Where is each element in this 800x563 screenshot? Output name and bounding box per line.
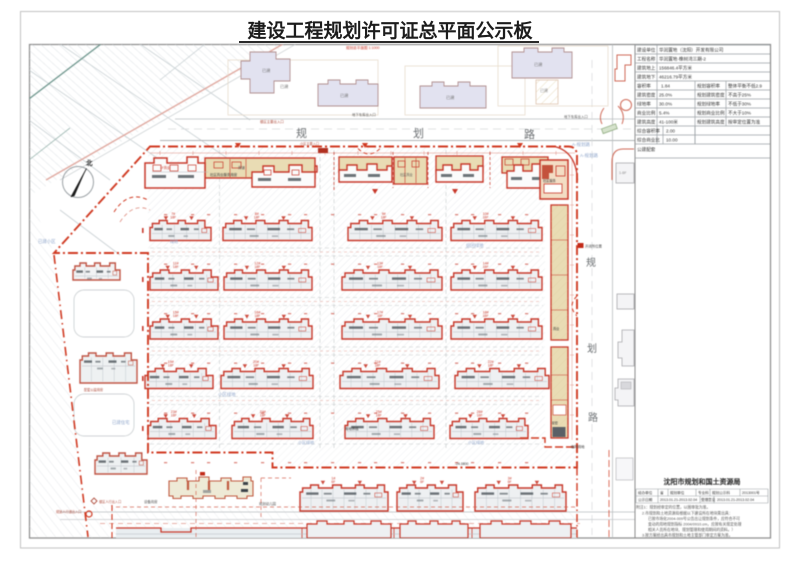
svg-text:路: 路 (524, 128, 535, 141)
svg-text:规划商业比例: 规划商业比例 (697, 109, 725, 116)
svg-text:已建: 已建 (280, 83, 289, 90)
svg-text:商业: 商业 (553, 326, 559, 331)
svg-text:已建: 已建 (540, 87, 548, 93)
svg-text:华润置地（沈阳）开发有限公司: 华润置地（沈阳）开发有限公司 (659, 46, 724, 53)
svg-text:18F: 18F (488, 364, 494, 368)
svg-text:公示日期: 公示日期 (638, 497, 653, 502)
svg-text:2.市规划和土地资源局根据以下建设所在地块需出具：: 2.市规划和土地资源局根据以下建设所在地块需出具： (642, 511, 733, 516)
svg-text:绿地率: 绿地率 (637, 100, 651, 107)
svg-text:18F: 18F (377, 265, 383, 269)
svg-text:已建: 已建 (446, 94, 455, 101)
svg-text:规划容积率: 规划容积率 (697, 82, 720, 89)
svg-text:相关人员所在地块、规划管理和使用期间的资料。）: 相关人员所在地块、规划管理和使用期间的资料。） (648, 527, 735, 532)
svg-text:配套: 配套 (552, 420, 558, 425)
svg-text:规划公示科: 规划公示科 (712, 490, 730, 495)
svg-text:10.00: 10.00 (666, 137, 678, 142)
svg-text:18F: 18F (375, 364, 381, 368)
svg-text:组团绿地: 组团绿地 (466, 242, 484, 249)
svg-text:公建配套: 公建配套 (637, 146, 656, 153)
svg-text:综合容积率: 综合容积率 (637, 127, 660, 134)
svg-text:路: 路 (588, 411, 598, 424)
svg-text:规划总平面图 1:1000: 规划总平面图 1:1000 (346, 45, 380, 50)
svg-text:已建: 已建 (340, 92, 349, 99)
svg-text:18F: 18F (253, 364, 259, 368)
svg-text:用地界线: 用地界线 (345, 426, 359, 431)
svg-text:2013001号: 2013001号 (742, 490, 760, 495)
svg-text:18F: 18F (376, 414, 382, 418)
svg-text:建筑高度: 建筑高度 (637, 118, 656, 125)
svg-text:地下车库出入口: 地下车库出入口 (352, 112, 376, 117)
svg-text:社区服务: 社区服务 (543, 178, 557, 183)
svg-text:规: 规 (296, 126, 307, 140)
svg-text:小区主要入口: 小区主要入口 (300, 141, 319, 146)
svg-text:41-100米: 41-100米 (659, 118, 678, 125)
svg-text:华润置地·橡树湾三期-2: 华润置地·橡树湾三期-2 (659, 55, 706, 62)
svg-text:25.0%: 25.0% (659, 92, 672, 97)
svg-text:划: 划 (587, 342, 597, 355)
svg-text:不高于25%: 不高于25% (728, 91, 751, 98)
svg-text:北: 北 (86, 158, 93, 167)
svg-text:A-规划路: A-规划路 (572, 141, 590, 148)
svg-text:3.按方案经出具市规划和土地主管部门审定方案为准。: 3.按方案经出具市规划和土地主管部门审定方案为准。 (642, 533, 733, 538)
svg-text:小区绿地: 小区绿地 (298, 439, 314, 445)
svg-text:建设单位: 建设单位 (637, 46, 656, 53)
svg-text:地下车库出入口: 地下车库出入口 (564, 114, 588, 119)
svg-text:开闭所位置: 开闭所位置 (585, 244, 603, 249)
svg-text:社区商业服务用房: 社区商业服务用房 (210, 172, 238, 177)
svg-text:18F: 18F (168, 364, 174, 368)
svg-text:配套公建用房: 配套公建用房 (84, 387, 103, 392)
svg-text:建筑地下: 建筑地下 (637, 73, 656, 80)
svg-text:30.0%: 30.0% (659, 101, 672, 106)
svg-text:小区绿地: 小区绿地 (468, 439, 484, 445)
svg-text:经办单位: 经办单位 (638, 490, 653, 495)
svg-text:已建小区: 已建小区 (38, 238, 56, 245)
svg-text:不大于10%: 不大于10% (728, 109, 751, 116)
svg-text:按审定位置为准: 按审定位置为准 (728, 118, 761, 125)
svg-text:1F商业: 1F商业 (160, 165, 170, 170)
svg-text:楼区主要出入口: 楼区主要出入口 (260, 119, 284, 124)
svg-text:6F: 6F (331, 480, 335, 484)
svg-text:专业科: 专业科 (698, 490, 709, 495)
svg-text:A-规划路: A-规划路 (580, 152, 598, 159)
svg-text:商业比例: 商业比例 (637, 109, 656, 116)
svg-text:绿地: 绿地 (170, 238, 178, 244)
svg-text:规划建筑高度: 规划建筑高度 (697, 118, 725, 125)
svg-text:变动的用地规划指标 2004/0910.cm，应按有关规定处: 变动的用地规划指标 2004/0910.cm，应按有关规定处理 (648, 522, 742, 527)
svg-text:附注1：规划经审定的位置，以图审批为准。: 附注1：规划经审定的位置，以图审批为准。 (636, 505, 710, 510)
svg-text:规划建筑密度: 规划建筑密度 (697, 91, 725, 98)
svg-text:已建住宅: 已建住宅 (112, 419, 130, 426)
svg-text:已建: 已建 (534, 61, 543, 68)
svg-text:容积率: 容积率 (637, 82, 651, 89)
svg-text:18F: 18F (173, 265, 179, 269)
svg-text:156846.4平方米: 156846.4平方米 (659, 64, 692, 71)
svg-text:18F: 18F (483, 314, 489, 318)
svg-text:18F: 18F (260, 414, 266, 418)
svg-text:2013.01.21-2013.02.04: 2013.01.21-2013.02.04 (717, 498, 754, 502)
svg-text:商铺: 商铺 (238, 165, 245, 170)
svg-text:规划幼儿园: 规划幼儿园 (259, 501, 277, 506)
svg-text:6F: 6F (508, 480, 512, 484)
svg-text:18F: 18F (170, 216, 176, 220)
svg-text:5.4%: 5.4% (659, 110, 669, 115)
svg-text:社区商业: 社区商业 (400, 172, 413, 177)
svg-text:设备用房: 设备用房 (144, 499, 158, 504)
svg-text:18F: 18F (477, 414, 483, 418)
svg-text:已建: 已建 (262, 67, 271, 74)
svg-text:18F: 18F (254, 265, 260, 269)
svg-text:规划绿地率: 规划绿地率 (697, 100, 720, 107)
svg-text:划: 划 (413, 127, 424, 140)
svg-text:不低于30%: 不低于30% (728, 100, 751, 107)
svg-text:规划人行道出入口: 规划人行道出入口 (56, 509, 82, 514)
svg-text:小区绿地: 小区绿地 (218, 391, 236, 398)
svg-text:工程名称: 工程名称 (637, 55, 656, 62)
svg-text:2.00: 2.00 (666, 128, 675, 133)
svg-text:已按市场化2004-009号公告出让规划条件，应符合不可: 已按市场化2004-009号公告出让规划条件，应符合不可 (648, 516, 740, 521)
svg-text:-24.0800: -24.0800 (455, 462, 468, 466)
svg-text:建筑密度: 建筑密度 (637, 91, 656, 98)
svg-text:整体平衡不低2.9: 整体平衡不低2.9 (728, 82, 762, 89)
svg-text:临时用地: 临时用地 (571, 444, 585, 449)
svg-text:18F: 18F (254, 314, 260, 318)
svg-text:18F: 18F (381, 216, 387, 220)
svg-text:楼区人行出入口: 楼区人行出入口 (99, 499, 121, 504)
svg-text:1-6F: 1-6F (619, 171, 627, 175)
svg-text:规划单位: 规划单位 (670, 490, 685, 495)
svg-text:1.84: 1.84 (661, 83, 670, 88)
svg-text:沈阳市规划和国土资源局: 沈阳市规划和国土资源局 (664, 477, 741, 486)
svg-text:18F: 18F (171, 414, 177, 418)
svg-text:18F: 18F (377, 314, 383, 318)
svg-text:18F: 18F (173, 314, 179, 318)
svg-text:省: 省 (660, 490, 664, 495)
svg-text:综合商业比: 综合商业比 (637, 136, 660, 143)
svg-text:18F: 18F (483, 216, 489, 220)
svg-text:规: 规 (586, 256, 596, 269)
svg-text:46216.79平方米: 46216.79平方米 (659, 73, 692, 80)
svg-text:18F: 18F (254, 216, 260, 220)
svg-text:受理意见: 受理意见 (701, 497, 716, 502)
svg-text:18F: 18F (483, 265, 489, 269)
svg-text:6F: 6F (420, 480, 424, 484)
svg-text:2013.01.21-2013.02.04: 2013.01.21-2013.02.04 (660, 498, 697, 502)
svg-text:建筑地上: 建筑地上 (637, 64, 656, 71)
